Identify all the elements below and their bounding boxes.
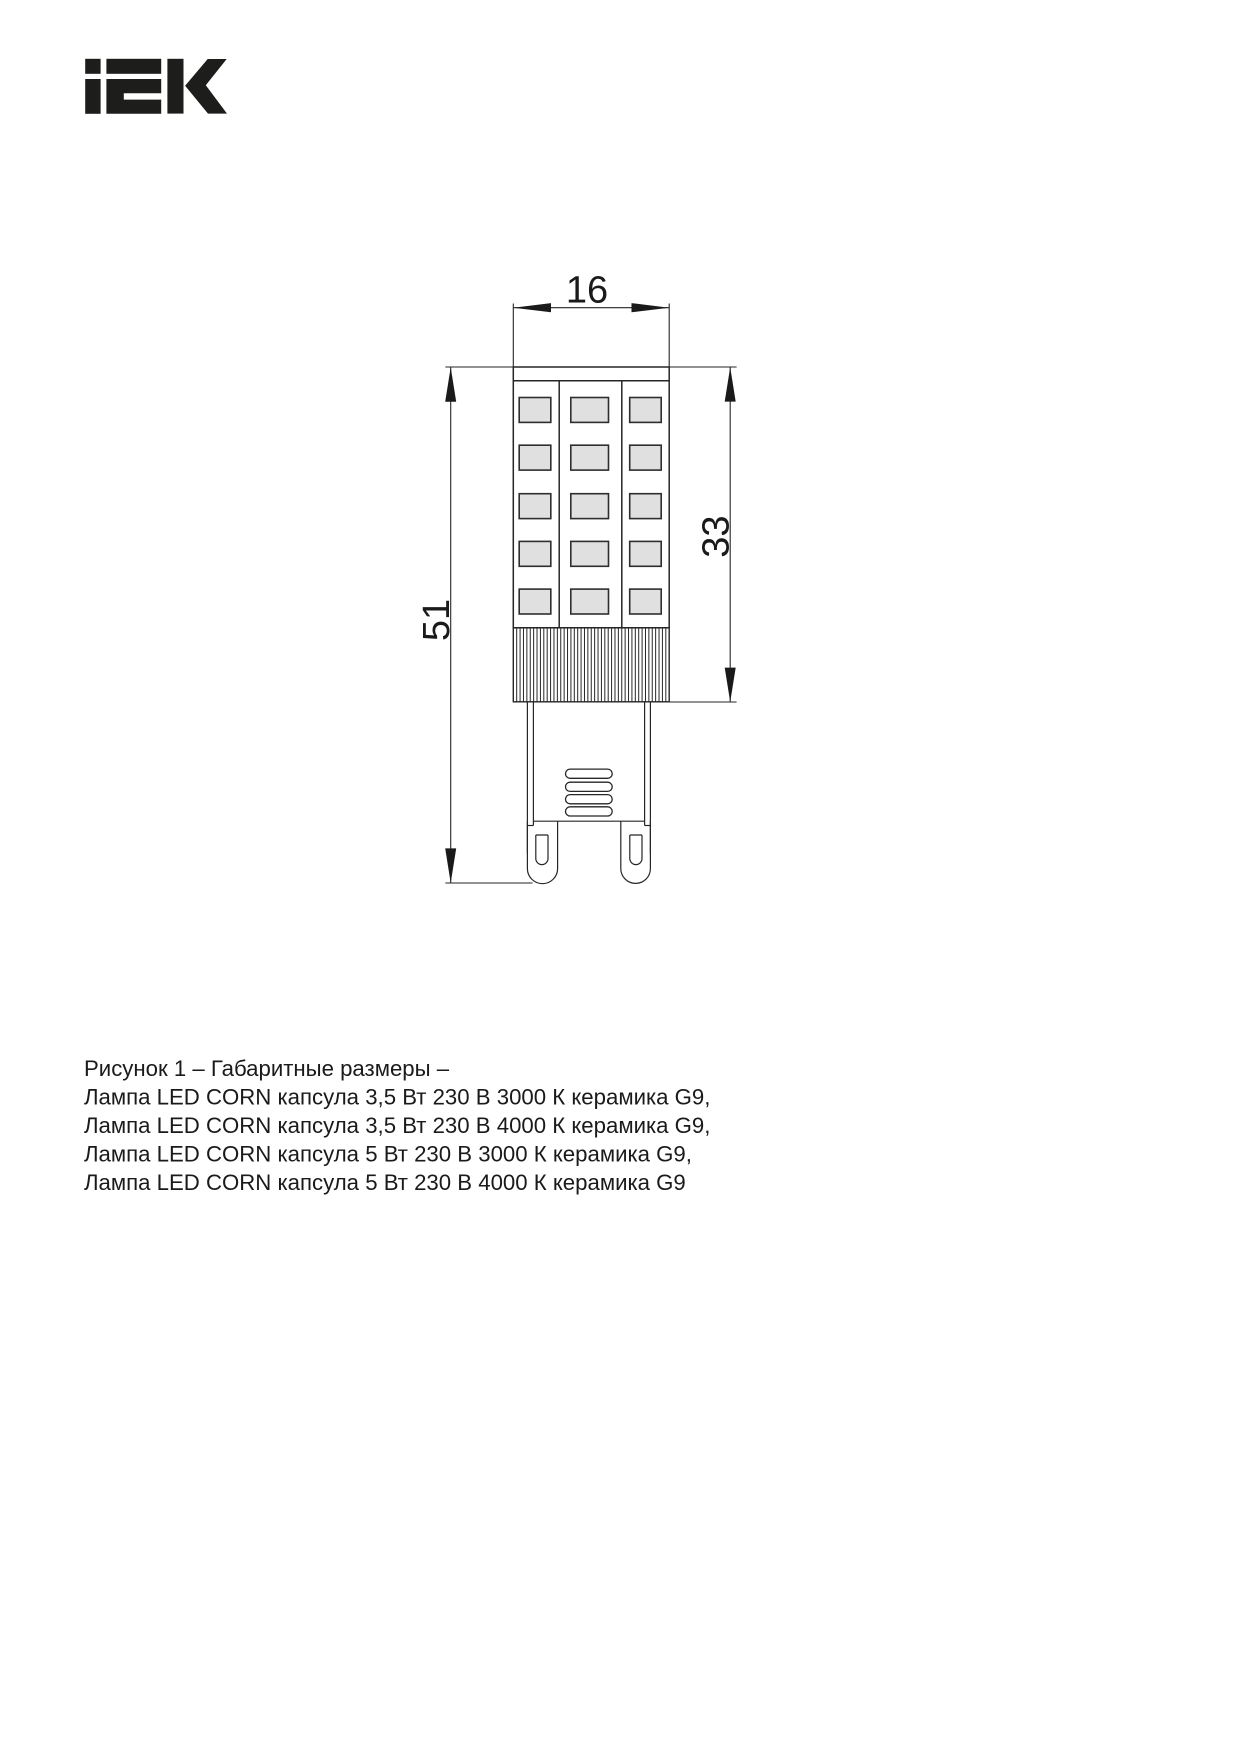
svg-text:Лампа LED CORN капсула 5 Вт 23: Лампа LED CORN капсула 5 Вт 230 В 3000 К… [84,1142,692,1167]
svg-text:51: 51 [416,599,458,641]
svg-text:Лампа LED CORN капсула 3,5 Вт: Лампа LED CORN капсула 3,5 Вт 230 В 4000… [84,1113,710,1138]
svg-text:Лампа LED CORN капсула 3,5 Вт: Лампа LED CORN капсула 3,5 Вт 230 В 3000… [84,1085,710,1110]
svg-text:33: 33 [696,515,738,557]
svg-text:Рисунок 1 – Габаритные размеры: Рисунок 1 – Габаритные размеры – [84,1056,450,1081]
svg-text:Лампа LED CORN капсула 5 Вт 23: Лампа LED CORN капсула 5 Вт 230 В 4000 К… [84,1170,686,1195]
svg-text:16: 16 [566,270,608,312]
